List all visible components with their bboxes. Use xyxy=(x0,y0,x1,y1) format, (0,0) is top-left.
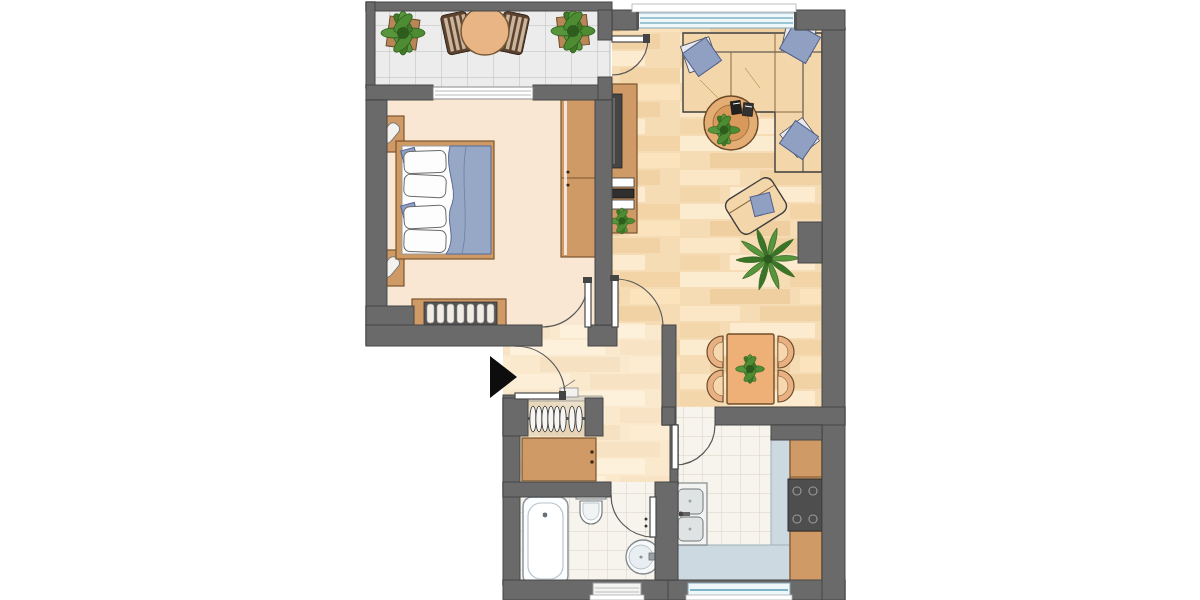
kitchen-wall-block xyxy=(771,425,822,440)
book xyxy=(730,100,742,114)
living-room-window xyxy=(632,4,797,29)
tv xyxy=(611,94,622,168)
media-sideboard xyxy=(609,84,637,234)
outer-wall-right xyxy=(822,28,845,600)
niche-wall-left xyxy=(503,398,528,436)
double-bed xyxy=(396,141,494,259)
bedroom-sideboard-slatted xyxy=(412,299,506,328)
kitchen-window xyxy=(686,583,792,600)
bathroom-window xyxy=(590,583,644,600)
hifi-component xyxy=(611,189,634,198)
coat-rack xyxy=(528,406,585,432)
bath-kitchen-wall xyxy=(655,482,678,580)
bedroom-wardrobe xyxy=(561,99,597,257)
living-wall-pillar xyxy=(798,222,822,263)
floor-plan xyxy=(0,0,1200,600)
kitchen-bottom-counter xyxy=(673,545,790,581)
book xyxy=(742,103,753,117)
pillow xyxy=(403,174,446,198)
hifi-component xyxy=(611,178,634,187)
bathtub xyxy=(523,497,568,585)
balcony-table xyxy=(461,7,509,55)
door-stub-wall xyxy=(588,325,617,346)
pillow xyxy=(404,150,447,173)
balcony-wall-top xyxy=(366,2,612,11)
bed-duvet xyxy=(446,146,491,254)
balcony-living-wall-top xyxy=(598,10,612,40)
window-sill xyxy=(590,595,644,600)
niche-wall-right xyxy=(585,398,603,436)
window-sill xyxy=(686,595,792,600)
living-wall-top-right xyxy=(795,10,845,30)
balcony-bedroom-window xyxy=(433,87,533,99)
stove xyxy=(788,479,822,531)
coffee-table xyxy=(704,96,758,150)
pillow xyxy=(403,205,446,229)
pillow xyxy=(404,229,447,252)
hifi-component xyxy=(611,200,634,209)
bedroom-wall-left xyxy=(366,100,387,325)
dining-wall-left xyxy=(662,407,675,425)
bathroom-wall-top xyxy=(503,482,611,497)
window-sill xyxy=(632,4,796,12)
bedroom-wall-top-left xyxy=(366,85,433,100)
dining-wall-bottom xyxy=(715,407,845,425)
hall-wardrobe xyxy=(522,438,596,481)
balcony-wall-left xyxy=(366,2,375,88)
bedroom-living-wall xyxy=(595,100,612,325)
floor-plan-page xyxy=(0,0,1200,600)
bedroom-wall-bottom xyxy=(366,325,542,346)
balcony-living-wall-bottom xyxy=(598,77,612,100)
living-wall-top-left xyxy=(612,10,638,30)
